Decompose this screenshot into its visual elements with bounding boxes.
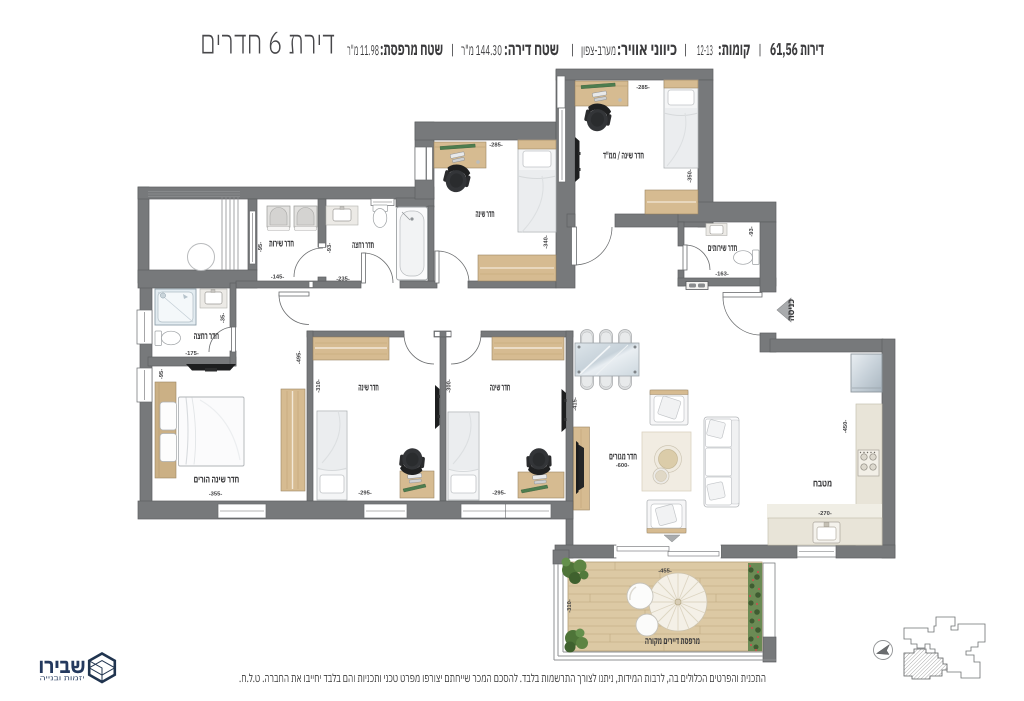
svg-text:-310-: -310-	[316, 379, 322, 393]
svg-text:-295-: -295-	[358, 491, 372, 497]
svg-text:-163-: -163-	[715, 272, 729, 278]
svg-text:-340-: -340-	[544, 235, 550, 249]
svg-text:-270-: -270-	[818, 511, 832, 517]
svg-text:-415-: -415-	[573, 397, 579, 411]
svg-text:-285-: -285-	[489, 143, 503, 149]
svg-text:-235-: -235-	[336, 277, 350, 283]
svg-text:-35-: -35-	[221, 313, 227, 323]
svg-text:-450-: -450-	[843, 420, 849, 434]
svg-text:-285-: -285-	[636, 85, 650, 91]
svg-text:-355-: -355-	[209, 492, 223, 498]
svg-text:-93-: -93-	[327, 243, 333, 253]
svg-text:-300-: -300-	[447, 379, 453, 393]
svg-text:-95-: -95-	[258, 242, 264, 252]
svg-text:-310-: -310-	[567, 599, 573, 613]
svg-text:-95-: -95-	[159, 369, 165, 379]
svg-text:-600-: -600-	[616, 463, 630, 469]
svg-text:-145-: -145-	[271, 275, 285, 281]
svg-text:-495-: -495-	[297, 351, 303, 365]
svg-text:-93-: -93-	[749, 226, 755, 236]
svg-text:-295-: -295-	[492, 491, 506, 497]
svg-text:-350-: -350-	[688, 169, 694, 183]
svg-text:-175-: -175-	[185, 351, 199, 357]
svg-text:-455-: -455-	[658, 569, 672, 575]
